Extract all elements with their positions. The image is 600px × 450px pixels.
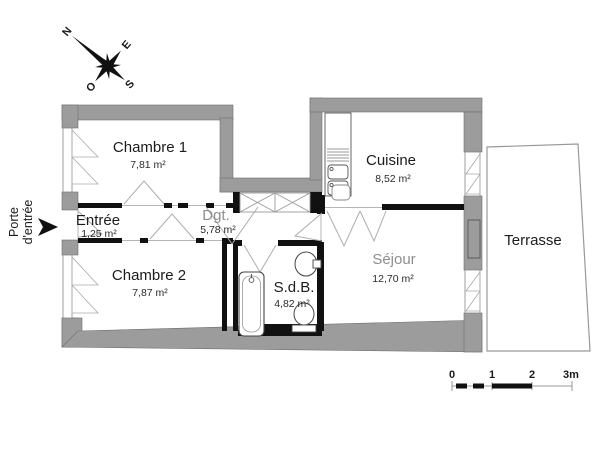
room-label-entree: Entrée	[76, 212, 120, 229]
compass-o: O	[84, 80, 99, 95]
room-area-cuisine: 8,52 m²	[375, 173, 411, 185]
compass-icon: N E S O	[43, 4, 155, 113]
scale-bar: 0 1 2 3m	[449, 369, 579, 391]
exterior-walls	[62, 98, 482, 352]
closets	[240, 193, 310, 212]
scale-0: 0	[449, 369, 455, 381]
compass-s: S	[123, 78, 137, 91]
kitchen-sink-icon	[325, 113, 351, 196]
radiator-icon	[332, 185, 350, 200]
scale-1: 1	[489, 369, 495, 381]
floor-plan-page: N E S O Porte d'entrée Chambre 1 7,81 m²…	[0, 0, 600, 450]
scale-2: 2	[529, 369, 535, 381]
entry-label-line2: d'entrée	[21, 200, 35, 245]
floor-plan-svg: N E S O Porte d'entrée Chambre 1 7,81 m²…	[0, 0, 600, 450]
scale-3m: 3m	[563, 369, 579, 381]
room-label-chambre2: Chambre 2	[112, 267, 186, 284]
bathtub-icon	[239, 272, 264, 336]
room-area-dgt: 5,78 m²	[200, 224, 236, 236]
room-area-chambre2: 7,87 m²	[132, 287, 168, 299]
windows	[63, 128, 480, 318]
room-area-sdb: 4,82 m²	[274, 298, 310, 310]
room-label-sejour: Séjour	[372, 251, 415, 268]
room-label-chambre1: Chambre 1	[113, 139, 187, 156]
room-area-sejour: 12,70 m²	[372, 273, 414, 285]
room-area-chambre1: 7,81 m²	[130, 159, 166, 171]
entry-label-line1: Porte	[7, 207, 21, 237]
entry-arrow-icon	[38, 218, 58, 236]
compass-e: E	[120, 39, 134, 52]
compass-n: N	[60, 25, 74, 39]
room-label-dgt: Dgt.	[202, 207, 230, 224]
room-label-sdb: S.d.B.	[274, 279, 315, 296]
room-label-cuisine: Cuisine	[366, 152, 416, 169]
room-label-terrasse: Terrasse	[504, 232, 562, 249]
room-area-entree: 1,25 m²	[81, 228, 117, 240]
